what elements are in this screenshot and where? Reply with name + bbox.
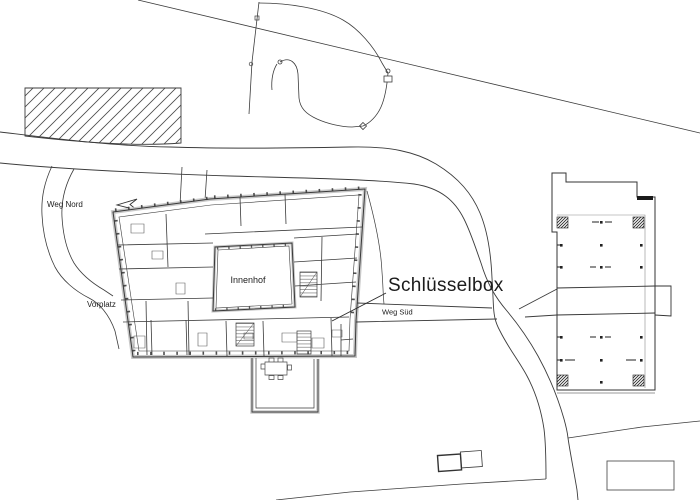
barn-passage	[557, 286, 655, 315]
barn-building	[552, 173, 671, 393]
main-road-north-edge	[0, 132, 546, 479]
contour-marker-square	[384, 76, 392, 82]
barn-passage-east-stub	[655, 286, 671, 316]
roads-and-boundaries	[0, 0, 700, 500]
barn-column-dots	[560, 221, 643, 384]
boundary-diagonal-line	[138, 0, 700, 133]
east-retaining-wall	[367, 191, 384, 304]
site-plan-drawing: Weg Nord Vorplatz	[0, 0, 700, 500]
weg-sued-label: Weg Süd	[382, 308, 413, 317]
weg-nord-path	[42, 166, 119, 349]
barn-dark-wall-segment	[637, 196, 653, 200]
hatched-area	[25, 88, 181, 144]
barn-inner-lines	[557, 215, 645, 388]
outbuilding-rect	[607, 461, 674, 490]
boundary-bottom	[276, 479, 546, 500]
fence-line	[249, 2, 259, 114]
vorplatz-label: Vorplatz	[87, 300, 116, 309]
main-building	[113, 188, 384, 412]
barn-beam-dashes	[557, 222, 636, 360]
weg-nord-label: Weg Nord	[47, 200, 83, 209]
boundary-bottom-right	[568, 421, 700, 438]
terrace-table-and-chairs	[261, 358, 292, 380]
shed-structure	[437, 450, 482, 471]
schluesselbox-label: Schlüsselbox	[388, 275, 504, 296]
barn-outline	[552, 173, 655, 390]
innenhof-label: Innenhof	[230, 275, 266, 285]
contour-loop	[280, 60, 388, 127]
hillside-contour	[259, 3, 392, 130]
main-road-south-edge	[0, 163, 578, 500]
contour-stub	[272, 64, 277, 90]
garden-terrace	[252, 358, 318, 412]
site-plan-page: Weg Nord Vorplatz	[0, 0, 700, 500]
